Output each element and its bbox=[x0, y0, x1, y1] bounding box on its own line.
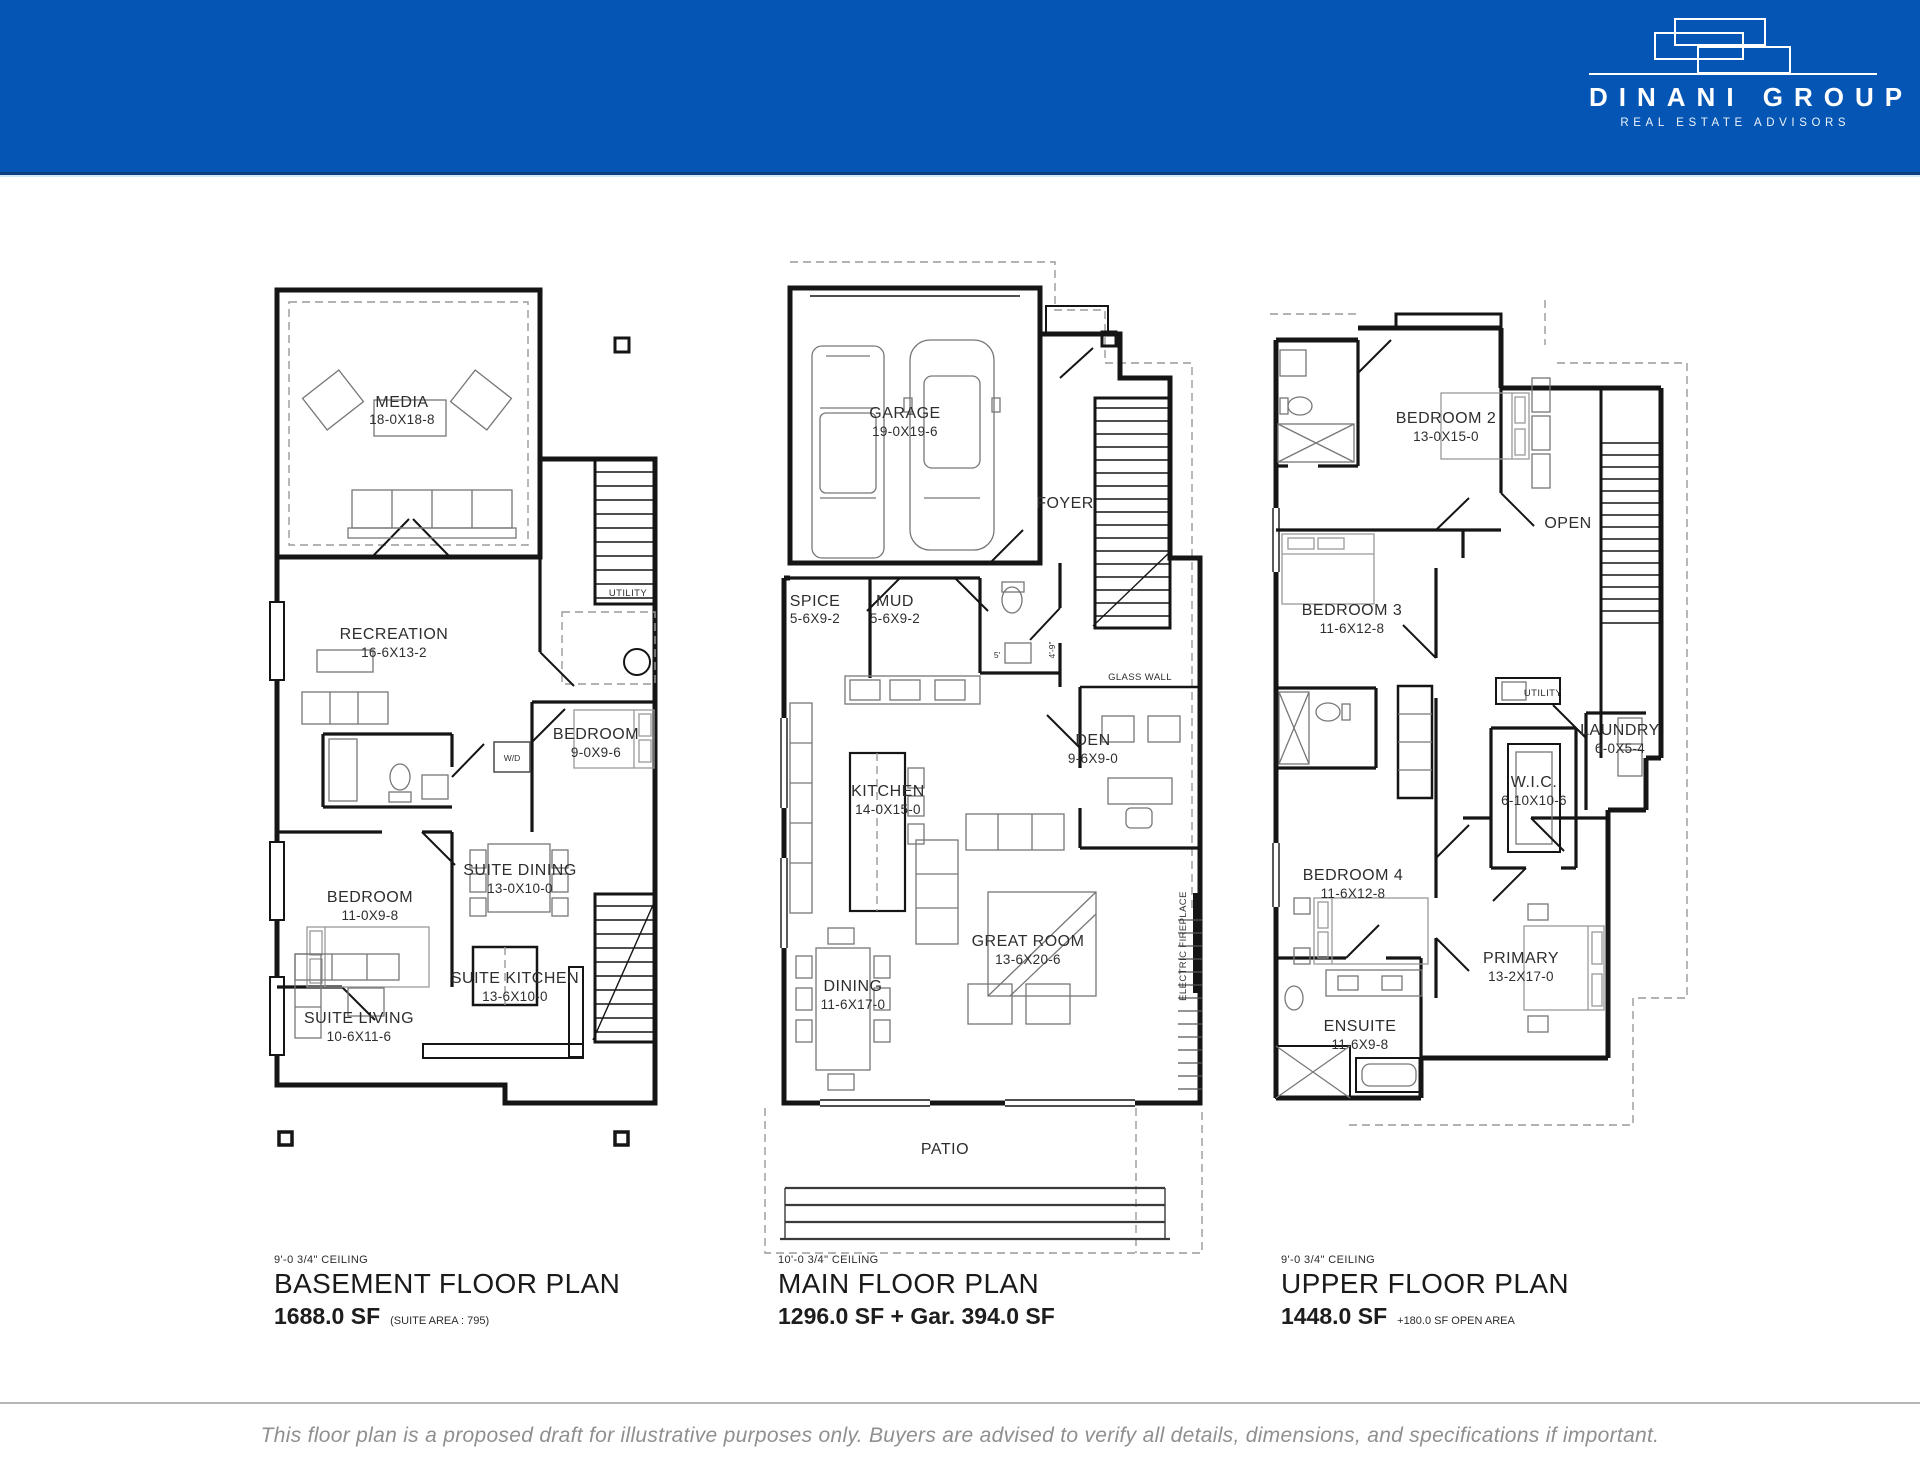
basement-ceiling-note: 9'-0 3/4" CEILING bbox=[274, 1254, 620, 1266]
room-label: LAUNDRY bbox=[1580, 722, 1660, 739]
room-dims: 13-0X15-0 bbox=[1413, 429, 1479, 444]
room-dims: 16-6X13-2 bbox=[361, 645, 427, 660]
room-dims: 6-0X5-4 bbox=[1595, 741, 1645, 756]
room-label: BEDROOM 4 bbox=[1303, 867, 1404, 884]
dim-annotation: 5' bbox=[994, 650, 1001, 660]
overlapping-rectangles-logo-icon bbox=[1583, 14, 1883, 80]
room-dims: 11-6X17-0 bbox=[821, 997, 886, 1012]
header-bar: DINANI GROUP REAL ESTATE ADVISORS bbox=[0, 0, 1920, 175]
dim-annotation: 4'-9" bbox=[1047, 642, 1057, 659]
room-label: W.I.C. bbox=[1511, 774, 1558, 791]
room-label: BEDROOM bbox=[553, 726, 639, 743]
main-title: MAIN FLOOR PLAN bbox=[778, 1268, 1055, 1300]
room-dims: 10-6X11-6 bbox=[327, 1029, 392, 1044]
room-dims: 5-6X9-2 bbox=[870, 611, 920, 626]
upper-plan-drawing: BEDROOM 2 13-0X15-0 OPEN BEDROOM 3 11-6X… bbox=[1246, 298, 1696, 1148]
room-dims: 13-2X17-0 bbox=[1488, 969, 1554, 984]
room-dims: 11-6X9-8 bbox=[1332, 1037, 1389, 1052]
room-label: MUD bbox=[876, 593, 914, 610]
main-walls bbox=[778, 288, 1202, 1239]
room-label: GREAT ROOM bbox=[972, 933, 1085, 950]
main-plan-drawing: GARAGE 19-0X19-6 FOYER SPICE 5-6X9-2 MUD… bbox=[750, 248, 1220, 1258]
room-label: SUITE KITCHEN bbox=[451, 970, 579, 987]
room-label: UTILITY bbox=[1524, 688, 1562, 699]
room-label: BEDROOM 2 bbox=[1396, 410, 1497, 427]
room-dims: 13-6X10-0 bbox=[482, 989, 548, 1004]
main-area: 1296.0 SF + Gar. 394.0 SF bbox=[778, 1303, 1055, 1330]
room-label: FOYER bbox=[1036, 495, 1094, 512]
room-label: UTILITY bbox=[609, 588, 647, 599]
room-dims: 13-0X10-0 bbox=[487, 881, 553, 896]
room-label: RECREATION bbox=[340, 626, 449, 643]
disclaimer-text: This floor plan is a proposed draft for … bbox=[0, 1424, 1920, 1448]
room-label: ELECTRIC FIREPLACE bbox=[1178, 891, 1189, 1001]
room-dims: 9-6X9-0 bbox=[1068, 751, 1118, 766]
room-label: KITCHEN bbox=[851, 783, 925, 800]
basement-area: 1688.0 SF bbox=[274, 1303, 380, 1330]
room-label: PATIO bbox=[921, 1141, 969, 1158]
basement-plan-drawing: MEDIA 18-0X18-8 RECREATION 16-6X13-2 UTI… bbox=[222, 272, 682, 1162]
room-dims: 11-0X9-8 bbox=[342, 908, 399, 923]
room-dims: 19-0X19-6 bbox=[872, 424, 938, 439]
upper-ceiling-note: 9'-0 3/4" CEILING bbox=[1281, 1254, 1569, 1266]
room-label: BEDROOM bbox=[327, 889, 413, 906]
room-dims: 5-6X9-2 bbox=[790, 611, 840, 626]
main-caption: 10'-0 3/4" CEILING MAIN FLOOR PLAN 1296.… bbox=[778, 1254, 1055, 1330]
brand-block: DINANI GROUP REAL ESTATE ADVISORS bbox=[1578, 14, 1888, 129]
room-label: ENSUITE bbox=[1324, 1018, 1397, 1035]
room-dims: 18-0X18-8 bbox=[369, 412, 435, 427]
room-label: PRIMARY bbox=[1483, 950, 1559, 967]
main-ceiling-note: 10'-0 3/4" CEILING bbox=[778, 1254, 1055, 1266]
basement-area-note: (SUITE AREA : 795) bbox=[390, 1315, 489, 1327]
room-dims: 9-0X9-6 bbox=[571, 745, 621, 760]
room-label: SUITE DINING bbox=[463, 862, 577, 879]
room-dims: 11-6X12-8 bbox=[1320, 621, 1385, 636]
room-label: SPICE bbox=[790, 593, 841, 610]
room-label: OPEN bbox=[1544, 515, 1591, 532]
room-label: DINING bbox=[824, 978, 883, 995]
upper-caption: 9'-0 3/4" CEILING UPPER FLOOR PLAN 1448.… bbox=[1281, 1254, 1569, 1330]
upper-title: UPPER FLOOR PLAN bbox=[1281, 1268, 1569, 1300]
footer-divider bbox=[0, 1402, 1920, 1404]
upper-area: 1448.0 SF bbox=[1281, 1303, 1387, 1330]
room-label: BEDROOM 3 bbox=[1302, 602, 1403, 619]
room-label: SUITE LIVING bbox=[304, 1010, 414, 1027]
basement-caption: 9'-0 3/4" CEILING BASEMENT FLOOR PLAN 16… bbox=[274, 1254, 620, 1330]
room-dims: 13-6X20-6 bbox=[995, 952, 1061, 967]
brand-name: DINANI GROUP bbox=[1578, 82, 1888, 113]
brand-tagline: REAL ESTATE ADVISORS bbox=[1578, 117, 1888, 129]
room-dims: 14-0X15-0 bbox=[855, 802, 921, 817]
basement-title: BASEMENT FLOOR PLAN bbox=[274, 1268, 620, 1300]
room-label: W/D bbox=[504, 753, 521, 763]
room-dims: 6-10X10-6 bbox=[1501, 793, 1567, 808]
room-label: GARAGE bbox=[869, 405, 940, 422]
room-label: DEN bbox=[1075, 732, 1110, 749]
room-dims: 11-6X12-8 bbox=[1321, 886, 1386, 901]
room-label: MEDIA bbox=[375, 394, 428, 411]
floor-plan-sheet: DINANI GROUP REAL ESTATE ADVISORS bbox=[0, 0, 1920, 1484]
room-label: GLASS WALL bbox=[1108, 672, 1172, 683]
upper-area-note: +180.0 SF OPEN AREA bbox=[1397, 1315, 1515, 1327]
